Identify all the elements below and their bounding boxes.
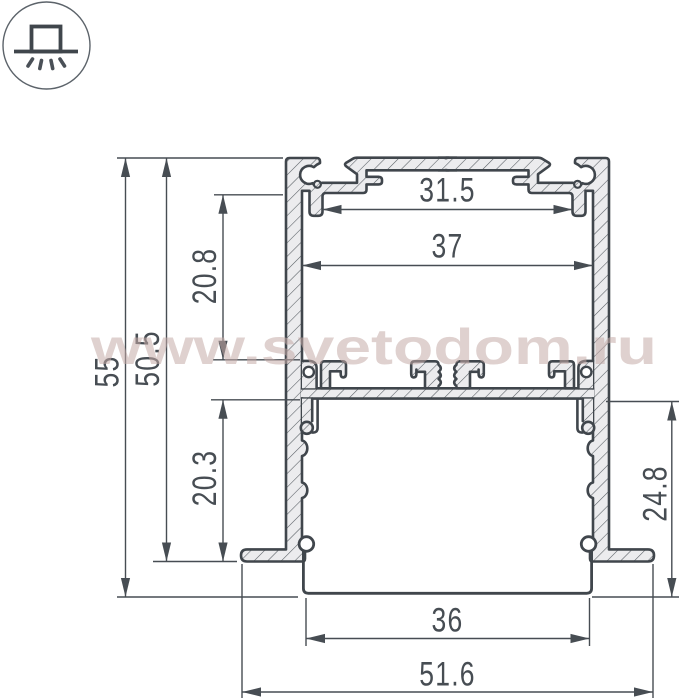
svg-text:31.5: 31.5 (419, 171, 476, 209)
svg-text:36: 36 (432, 601, 464, 639)
svg-text:20.3: 20.3 (186, 450, 224, 507)
svg-text:20.8: 20.8 (186, 248, 224, 305)
svg-text:51.6: 51.6 (419, 655, 476, 693)
svg-text:24.8: 24.8 (636, 465, 674, 522)
svg-text:37: 37 (432, 227, 464, 265)
svg-text:www.svetodom.ru: www.svetodom.ru (90, 319, 657, 375)
